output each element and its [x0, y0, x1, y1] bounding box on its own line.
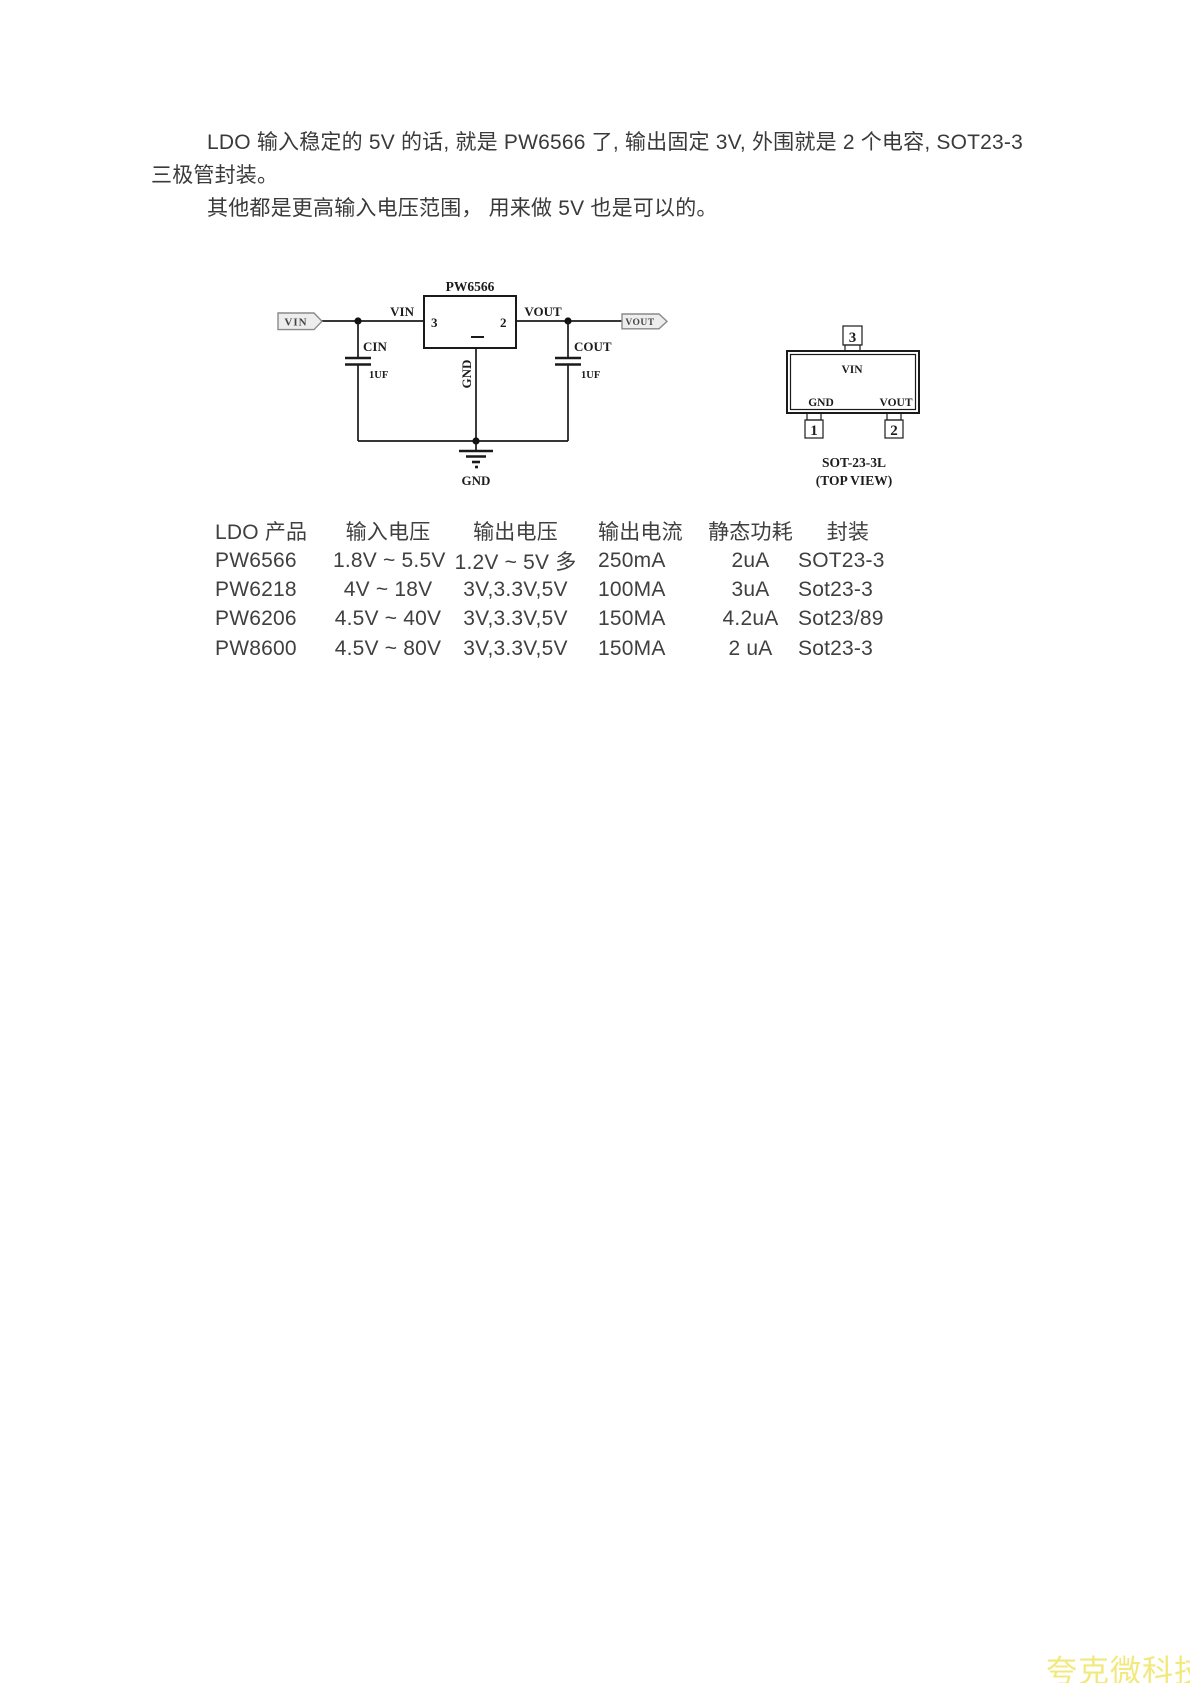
watermark: 夸克微科技	[1046, 1646, 1190, 1683]
table-row: PW6566 1.8V ~ 5.5V 1.2V ~ 5V 多 250mA 2uA…	[215, 546, 903, 576]
cin-value-label: 1UF	[369, 370, 388, 381]
table-header-row: LDO 产品 输入电压 输出电压 输出电流 静态功耗 封装	[215, 516, 903, 546]
package-vin-label: VIN	[841, 364, 863, 376]
cell-input-voltage: 4.5V ~ 40V	[333, 607, 443, 631]
sot23-package-diagram: 3 VIN GND VOUT 1 2 SOT-23-3L (TOP VIEW)	[730, 300, 940, 495]
ground-label: GND	[462, 473, 491, 488]
cell-product: PW6206	[215, 607, 333, 631]
ic-pin2-number: 2	[500, 315, 507, 330]
ic-gnd-pin-label: GND	[459, 360, 474, 389]
cell-output-current: 100MA	[588, 578, 708, 602]
cell-quiescent: 2 uA	[708, 637, 793, 661]
ic-name-label: PW6566	[446, 279, 495, 294]
cell-output-current: 150MA	[588, 607, 708, 631]
package-pin2-number: 2	[890, 423, 898, 439]
cell-input-voltage: 1.8V ~ 5.5V	[333, 549, 443, 573]
cout-name-label: COUT	[574, 339, 612, 354]
cell-output-voltage: 3V,3.3V,5V	[443, 578, 588, 602]
cell-quiescent: 4.2uA	[708, 607, 793, 631]
header-output-voltage: 输出电压	[443, 516, 588, 546]
ic-pin3-number: 3	[431, 315, 438, 330]
header-output-current: 输出电流	[588, 516, 708, 546]
package-pin1-stub	[807, 413, 821, 420]
cout-value-label: 1UF	[581, 370, 600, 381]
table-row: PW8600 4.5V ~ 80V 3V,3.3V,5V 150MA 2 uA …	[215, 634, 903, 664]
intro-line-2: 三极管封装。	[151, 159, 1023, 192]
document-page: LDO 输入稳定的 5V 的话, 就是 PW6566 了, 输出固定 3V, 外…	[0, 0, 1190, 1683]
cell-quiescent: 3uA	[708, 578, 793, 602]
table-row: PW6218 4V ~ 18V 3V,3.3V,5V 100MA 3uA Sot…	[215, 575, 903, 605]
vin-net-label: VIN	[390, 304, 414, 319]
package-pin3-number: 3	[849, 330, 857, 346]
header-package: 封装	[793, 516, 903, 546]
package-view-caption: (TOP VIEW)	[816, 473, 892, 488]
cell-package: SOT23-3	[793, 549, 903, 573]
intro-paragraphs: LDO 输入稳定的 5V 的话, 就是 PW6566 了, 输出固定 3V, 外…	[151, 126, 1023, 225]
vout-net-label: VOUT	[524, 304, 562, 319]
cell-package: Sot23-3	[793, 637, 903, 661]
cell-package: Sot23-3	[793, 578, 903, 602]
package-gnd-label: GND	[808, 397, 834, 409]
package-vout-label: VOUT	[880, 397, 913, 409]
cell-product: PW8600	[215, 637, 333, 661]
package-pin1-number: 1	[810, 423, 818, 439]
cell-quiescent: 2uA	[708, 549, 793, 573]
intro-line-1: LDO 输入稳定的 5V 的话, 就是 PW6566 了, 输出固定 3V, 外…	[151, 126, 1023, 159]
cell-output-voltage: 1.2V ~ 5V 多	[443, 546, 588, 576]
cell-output-current: 250mA	[588, 549, 708, 573]
cell-product: PW6566	[215, 549, 333, 573]
intro-line-3: 其他都是更高输入电压范围， 用来做 5V 也是可以的。	[151, 192, 1023, 225]
cell-output-voltage: 3V,3.3V,5V	[443, 637, 588, 661]
cell-input-voltage: 4V ~ 18V	[333, 578, 443, 602]
cell-output-voltage: 3V,3.3V,5V	[443, 607, 588, 631]
header-product: LDO 产品	[215, 516, 333, 546]
cell-package: Sot23/89	[793, 607, 903, 631]
package-name-caption: SOT-23-3L	[822, 455, 886, 470]
vin-port-label: VIN	[284, 317, 307, 329]
ldo-application-schematic: PW6566 3 2 GND VIN VOUT CIN 1UF COUT 1UF…	[270, 260, 670, 495]
table-row: PW6206 4.5V ~ 40V 3V,3.3V,5V 150MA 4.2uA…	[215, 605, 903, 635]
header-input-voltage: 输入电压	[333, 516, 443, 546]
package-pin2-stub	[887, 413, 901, 420]
vout-port-label: VOUT	[625, 318, 654, 328]
ldo-product-table: LDO 产品 输入电压 输出电压 输出电流 静态功耗 封装 PW6566 1.8…	[215, 516, 903, 664]
header-quiescent: 静态功耗	[708, 516, 793, 546]
cell-product: PW6218	[215, 578, 333, 602]
cell-input-voltage: 4.5V ~ 80V	[333, 637, 443, 661]
cin-name-label: CIN	[363, 339, 387, 354]
cell-output-current: 150MA	[588, 637, 708, 661]
